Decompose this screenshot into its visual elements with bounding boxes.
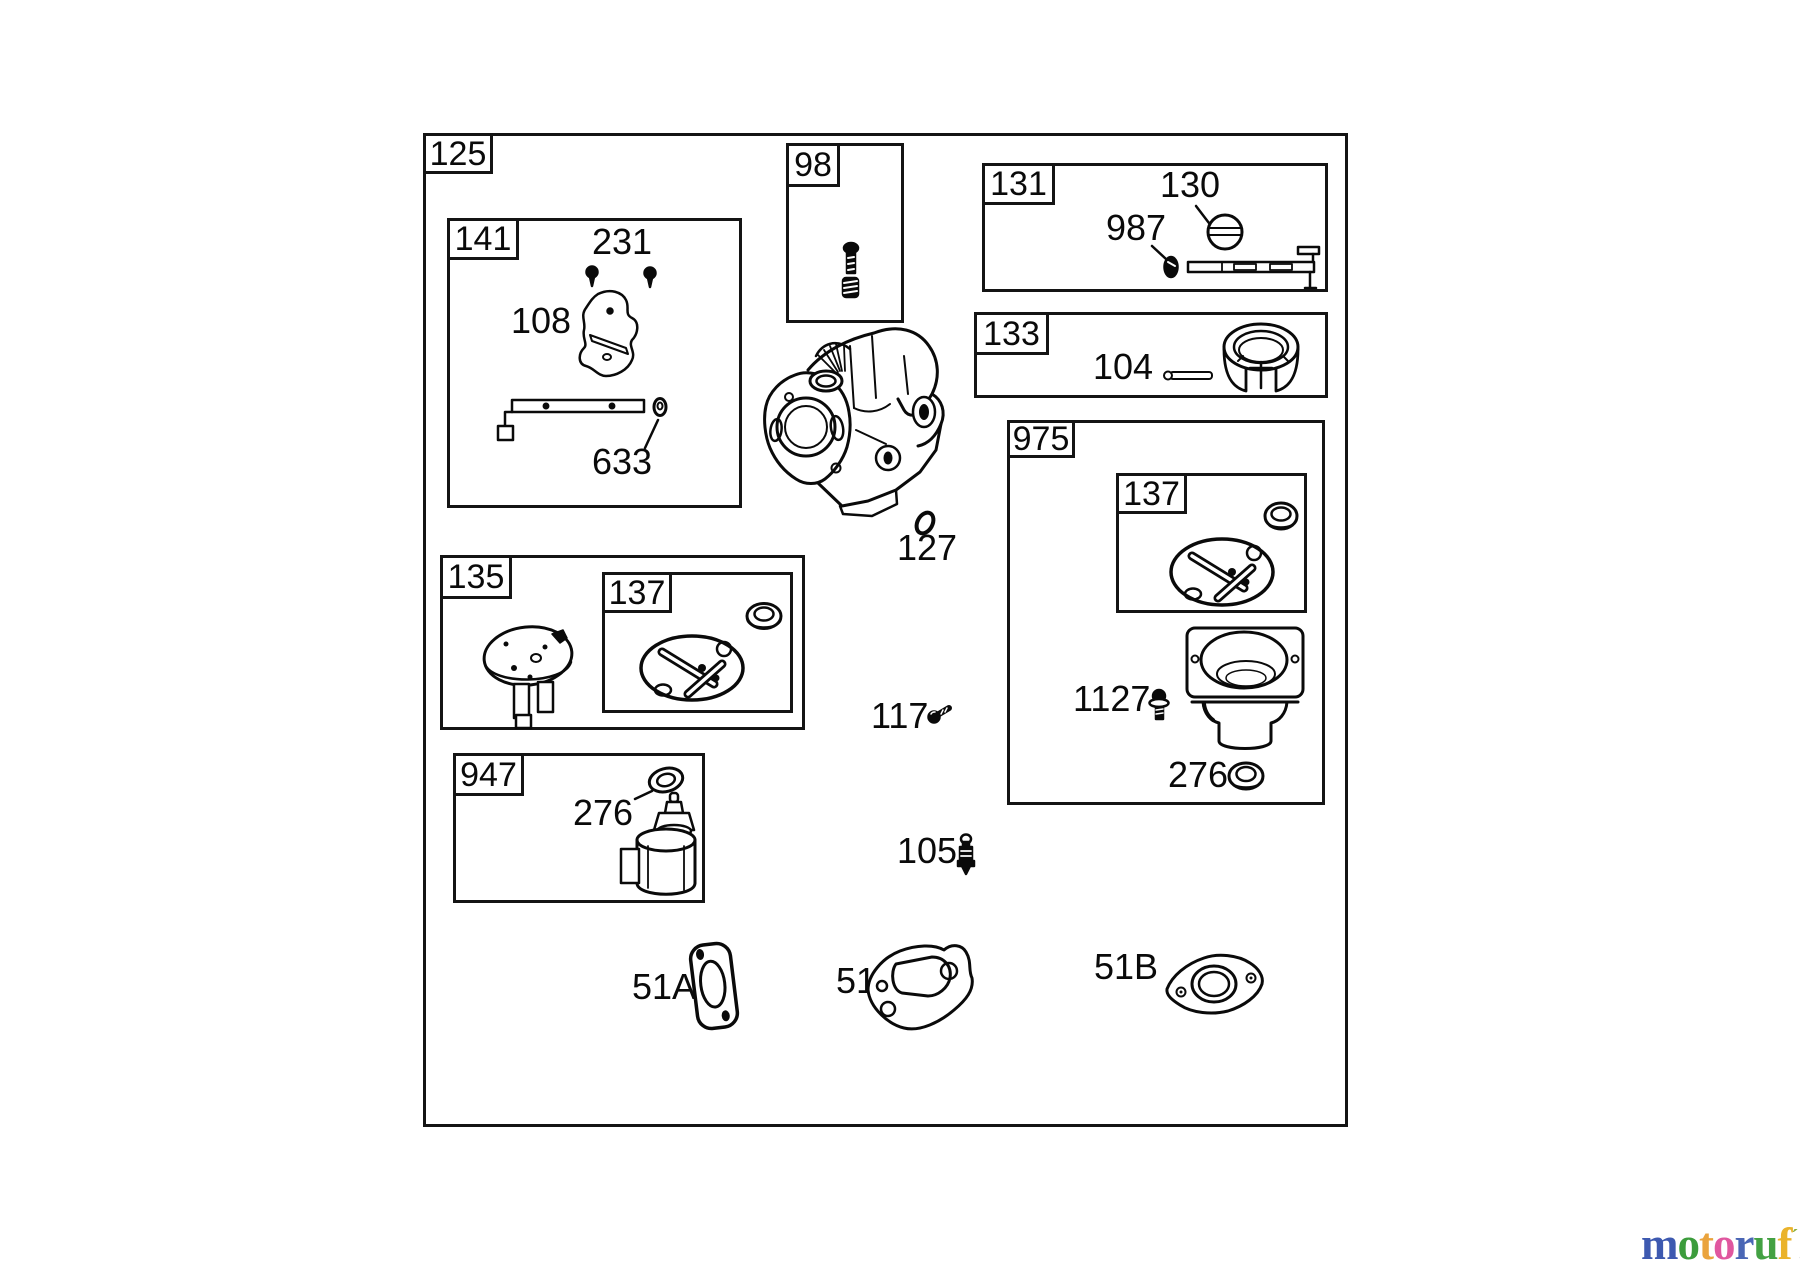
part-label-108: 108	[511, 303, 571, 339]
box-label-975: 975	[1007, 420, 1075, 458]
logo-letter: r	[1735, 1219, 1754, 1269]
logo-letter: o	[1713, 1219, 1735, 1269]
part-label-104: 104	[1093, 349, 1153, 385]
box-label-135: 135	[440, 555, 512, 599]
part-label-105: 105	[897, 833, 957, 869]
logo-letter: o	[1678, 1219, 1700, 1269]
section-box-98: 98	[786, 143, 904, 323]
part-label-633: 633	[592, 444, 652, 480]
logo-letter: f	[1778, 1219, 1792, 1269]
logo-letter: m	[1641, 1219, 1678, 1269]
part-label-276-bowl: 276	[1168, 757, 1228, 793]
box-label-131: 131	[982, 163, 1055, 205]
box-label-125: 125	[423, 133, 493, 174]
part-label-130: 130	[1160, 167, 1220, 203]
parts-diagram-page: 125 141 98 131 133 975 137 135 137 947 2…	[0, 0, 1800, 1269]
part-label-51: 51	[836, 963, 876, 999]
part-label-1127: 1127	[1073, 681, 1150, 717]
box-label-133: 133	[974, 312, 1049, 355]
part-label-117: 117	[871, 698, 928, 734]
part-label-231: 231	[592, 224, 652, 260]
box-label-137-upper: 137	[1116, 473, 1187, 514]
logo-letter: u	[1753, 1219, 1777, 1269]
section-box-137-lower: 137	[602, 572, 793, 713]
part-label-51A: 51A	[632, 969, 696, 1005]
part-label-276-solenoid: 276	[573, 795, 633, 831]
motoruf-logo[interactable]: motorufˊ.de	[1641, 1222, 1800, 1267]
box-label-947: 947	[453, 753, 524, 796]
box-label-141: 141	[447, 218, 519, 260]
part-label-51B: 51B	[1094, 949, 1158, 985]
box-label-98: 98	[786, 143, 840, 187]
part-label-987: 987	[1106, 210, 1166, 246]
logo-letter: t	[1699, 1219, 1713, 1269]
part-label-127: 127	[897, 530, 957, 566]
box-label-137-lower: 137	[602, 572, 672, 613]
section-box-137-upper: 137	[1116, 473, 1307, 613]
